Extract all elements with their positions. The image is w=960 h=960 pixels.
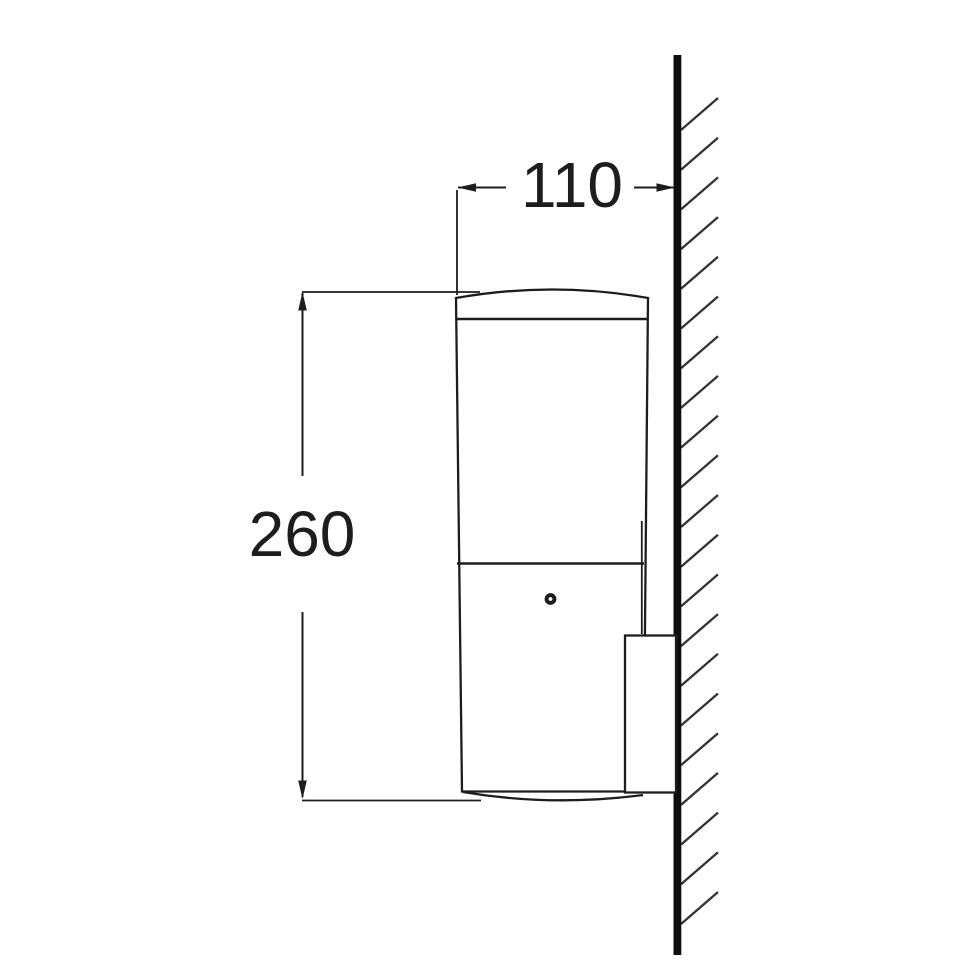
wall-line [674, 55, 682, 955]
screw-dot [547, 595, 555, 603]
height-arrowhead-bottom [298, 781, 307, 800]
hatch-line [681, 614, 718, 646]
wall [674, 55, 719, 955]
height-dimension-label: 260 [249, 498, 356, 570]
hatch-line [681, 376, 718, 408]
dimension-drawing: 110 260 [0, 0, 960, 960]
hatch-line [681, 773, 718, 805]
dimension-height: 260 [249, 292, 481, 801]
hatch-line [681, 138, 718, 170]
depth-arrowhead-left [458, 183, 477, 192]
hatch-line [681, 416, 718, 448]
luminaire [456, 290, 677, 801]
height-arrowhead-top [298, 292, 307, 311]
hatch-line [681, 336, 718, 368]
hatch-line [681, 257, 718, 289]
hatch-line [681, 892, 718, 924]
hatch-line [681, 217, 718, 249]
mounting-bracket [625, 636, 676, 793]
hatch-line [681, 98, 718, 130]
hatch-line [681, 495, 718, 527]
hatch-line [681, 177, 718, 209]
hatch-line [681, 535, 718, 567]
hatch-line [681, 297, 718, 329]
depth-dimension-label: 110 [521, 149, 623, 221]
hatch-line [681, 574, 718, 606]
depth-arrowhead-right [657, 183, 676, 192]
hatch-line [681, 455, 718, 487]
hatch-line [681, 733, 718, 765]
hatch-line [681, 852, 718, 884]
hatch-line [681, 654, 718, 686]
hatch-line [681, 694, 718, 726]
bottom-lip-curve [463, 792, 643, 800]
dimension-depth: 110 [457, 149, 675, 295]
luminaire-body [456, 290, 648, 792]
wall-hatching [681, 98, 718, 924]
hatch-line [681, 813, 718, 845]
